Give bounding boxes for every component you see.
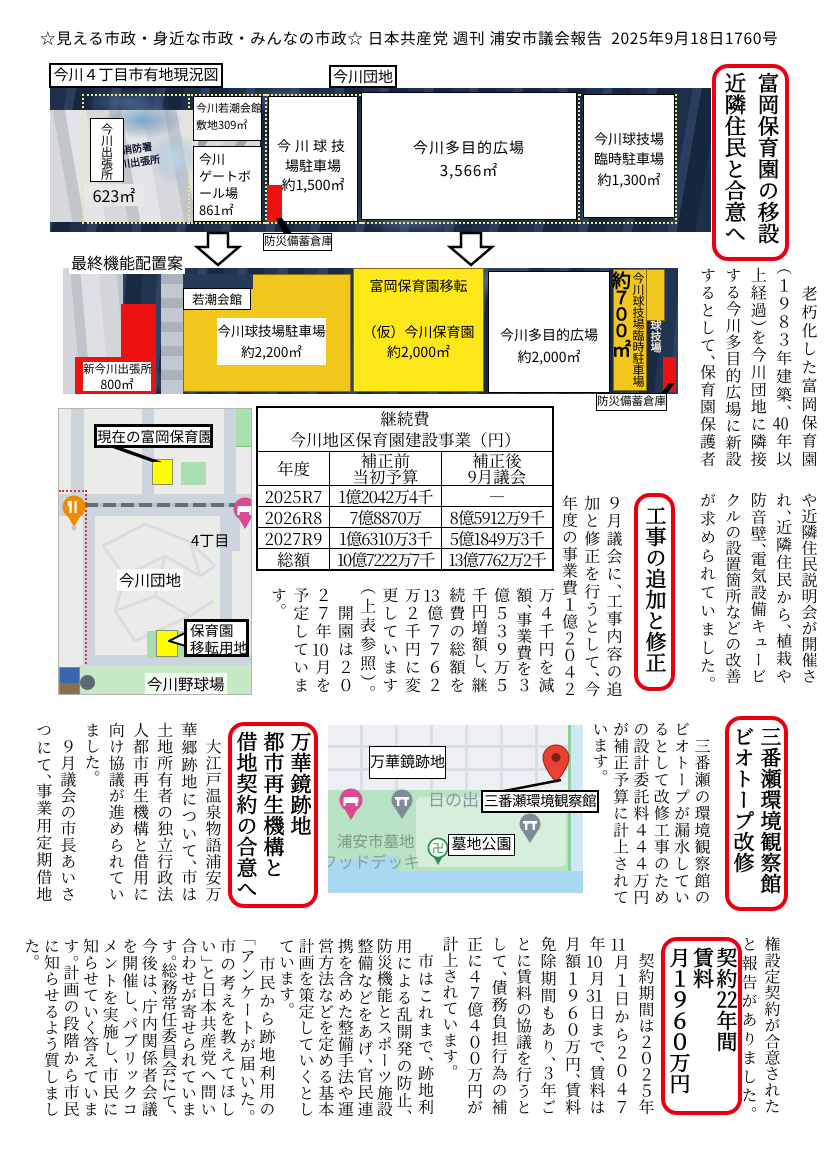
- svg-text:卍: 卍: [432, 840, 444, 857]
